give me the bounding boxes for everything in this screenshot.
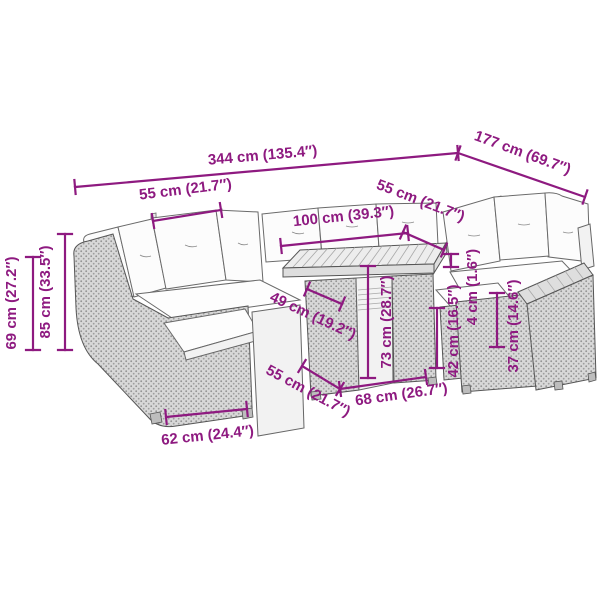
back-pillow (494, 193, 549, 260)
foot (462, 385, 471, 394)
dimension-label-cushion-thickness: 4 cm (1.6″) (464, 249, 481, 325)
dimension-label-back-height: 85 cm (33.5″) (37, 245, 54, 338)
foot (588, 372, 596, 382)
foot (554, 381, 563, 390)
dimension-label-arm-height: 69 cm (27.2″) (3, 256, 20, 349)
dimension-label-seat-height: 42 cm (16.5″) (445, 284, 462, 377)
dimension-label-frame-seat-height: 37 cm (14.6″) (505, 279, 522, 372)
foot (150, 412, 162, 424)
table-leg-right (392, 274, 436, 383)
dimension-diagram: 344 cm (135.4″)177 cm (69.7″)55 cm (21.7… (0, 0, 600, 600)
dimension-label-table-height: 73 cm (28.7″) (378, 275, 395, 368)
